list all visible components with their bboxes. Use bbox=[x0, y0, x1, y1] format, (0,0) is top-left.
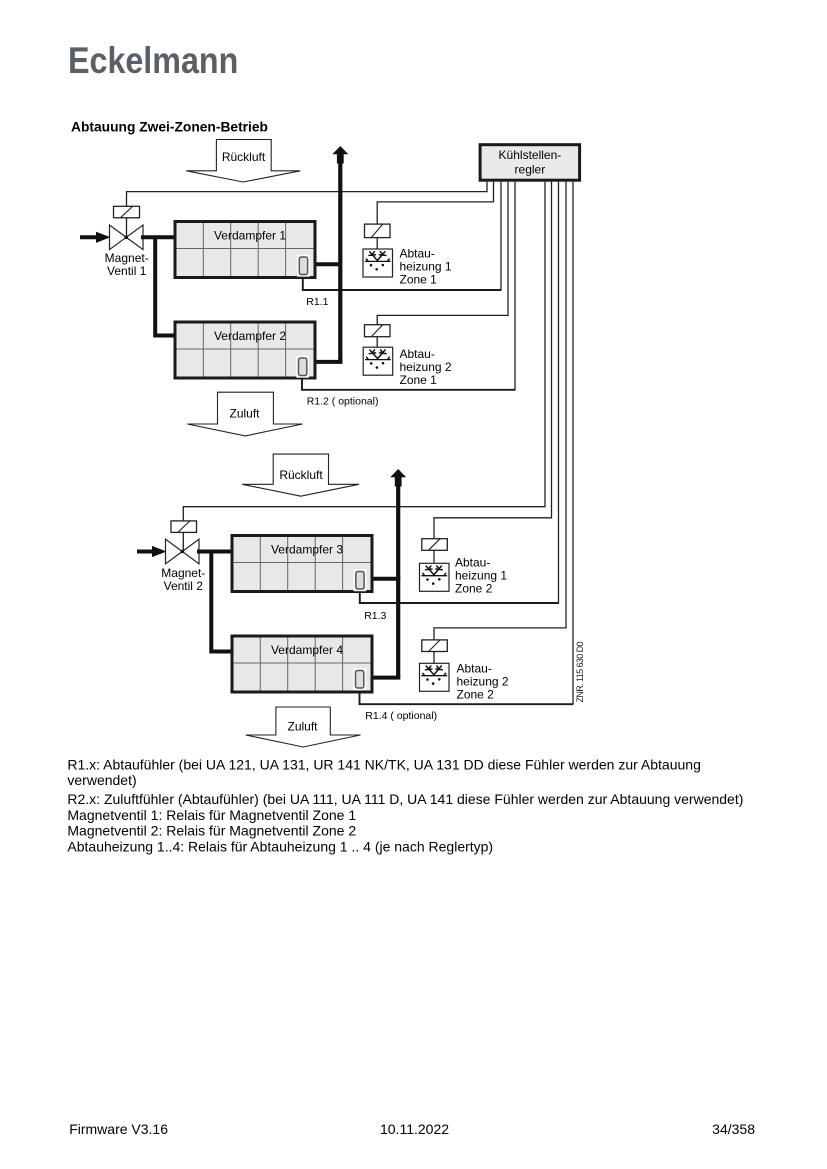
svg-text:Abtau-: Abtau- bbox=[400, 347, 435, 361]
svg-text:ZNR. 115 630 D0: ZNR. 115 630 D0 bbox=[575, 642, 585, 703]
svg-text:Abtau-: Abtau- bbox=[457, 662, 492, 676]
svg-text:R1.1: R1.1 bbox=[306, 296, 328, 308]
svg-text:Verdampfer 4: Verdampfer 4 bbox=[271, 643, 343, 657]
svg-text:Zone 1: Zone 1 bbox=[400, 373, 438, 387]
svg-text:Abtauung Zwei-Zonen-Betrieb: Abtauung Zwei-Zonen-Betrieb bbox=[71, 120, 268, 135]
svg-text:Rückluft: Rückluft bbox=[222, 150, 266, 164]
svg-text:Zuluft: Zuluft bbox=[229, 407, 260, 421]
svg-text:Abtau-: Abtau- bbox=[400, 246, 435, 260]
svg-text:Zone 2: Zone 2 bbox=[457, 688, 495, 702]
svg-text:R1.3: R1.3 bbox=[364, 610, 386, 622]
svg-text:10.11.2022: 10.11.2022 bbox=[380, 1121, 449, 1137]
svg-text:Firmware V3.16: Firmware V3.16 bbox=[69, 1121, 168, 1137]
svg-text:regler: regler bbox=[515, 163, 546, 177]
svg-text:Zone 1: Zone 1 bbox=[400, 272, 438, 286]
svg-text:Verdampfer 1: Verdampfer 1 bbox=[214, 228, 286, 242]
svg-text:R1.x: Abtaufühler (bei UA 121,: R1.x: Abtaufühler (bei UA 121, UA 131, U… bbox=[67, 756, 700, 772]
svg-text:Ventil 2: Ventil 2 bbox=[164, 579, 204, 593]
svg-text:Magnetventil 1: Relais für Mag: Magnetventil 1: Relais für Magnetventil … bbox=[67, 807, 356, 823]
svg-text:Abtau-: Abtau- bbox=[455, 556, 490, 570]
svg-text:Ventil 1: Ventil 1 bbox=[107, 264, 147, 278]
svg-text:Eckelmann: Eckelmann bbox=[68, 40, 238, 82]
svg-text:heizung 1: heizung 1 bbox=[400, 259, 452, 273]
svg-text:heizung 2: heizung 2 bbox=[400, 360, 452, 374]
svg-text:Verdampfer 3: Verdampfer 3 bbox=[271, 542, 343, 556]
svg-text:verwendet): verwendet) bbox=[67, 772, 136, 788]
svg-text:Kühlstellen-: Kühlstellen- bbox=[499, 148, 562, 162]
svg-text:Zuluft: Zuluft bbox=[287, 720, 318, 734]
svg-text:Rückluft: Rückluft bbox=[279, 468, 323, 482]
svg-text:heizung 2: heizung 2 bbox=[457, 675, 509, 689]
svg-text:Abtauheizung 1..4: Relais für: Abtauheizung 1..4: Relais für Abtauheizu… bbox=[67, 838, 493, 854]
svg-text:R2.x: Zuluftfühler (Abtaufühle: R2.x: Zuluftfühler (Abtaufühler) (bei UA… bbox=[67, 791, 743, 807]
svg-text:Verdampfer 2: Verdampfer 2 bbox=[214, 329, 286, 343]
svg-text:R1.4 ( optional): R1.4 ( optional) bbox=[365, 710, 437, 722]
svg-text:34/358: 34/358 bbox=[712, 1121, 755, 1137]
svg-text:heizung 1: heizung 1 bbox=[455, 569, 507, 583]
svg-text:Zone 2: Zone 2 bbox=[455, 582, 493, 596]
svg-text:Magnetventil 2: Relais für Mag: Magnetventil 2: Relais für Magnetventil … bbox=[67, 823, 356, 839]
svg-text:R1.2 ( optional): R1.2 ( optional) bbox=[307, 395, 379, 407]
